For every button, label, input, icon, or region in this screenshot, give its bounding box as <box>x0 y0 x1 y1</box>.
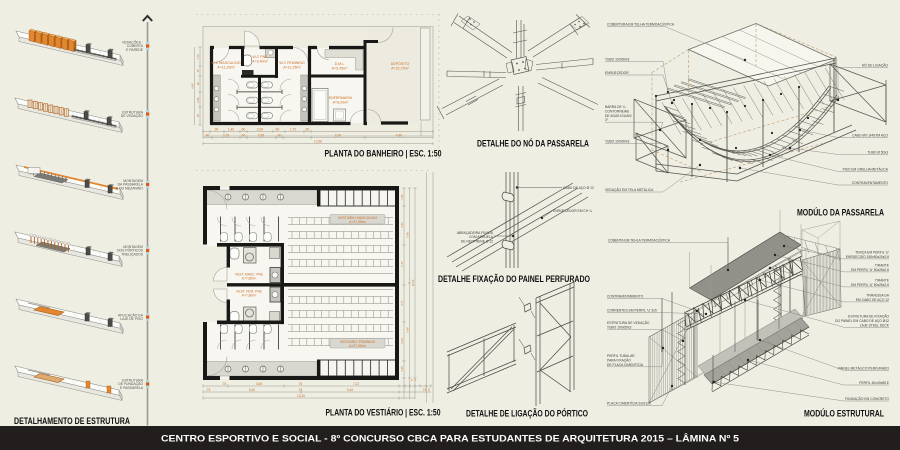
svg-text:PISO EM GRELHA METÁLICA: PISO EM GRELHA METÁLICA <box>843 168 889 172</box>
svg-text:.75: .75 <box>298 382 303 386</box>
svg-text:TUBO 100x50x3: TUBO 100x50x3 <box>605 58 630 62</box>
svg-text:NÓ DE LIGAÇÃO: NÓ DE LIGAÇÃO <box>862 63 888 68</box>
svg-text:BARRA DE ¼: BARRA DE ¼ <box>605 105 626 109</box>
svg-text:5,40: 5,40 <box>347 388 353 392</box>
svg-text:.60: .60 <box>205 133 210 137</box>
svg-text:.15: .15 <box>196 69 200 73</box>
svg-text:CORRENTES EM PERFIL 'U' 3x5: CORRENTES EM PERFIL 'U' 3x5 <box>607 309 657 313</box>
svg-text:A=5,45m²: A=5,45m² <box>332 67 348 71</box>
svg-text:PLACA CIMENTÍCIA 2x0x120: PLACA CIMENTÍCIA 2x0x120 <box>607 402 651 406</box>
svg-text:7,22: 7,22 <box>353 382 359 386</box>
svg-text:3,43: 3,43 <box>400 338 404 344</box>
svg-text:,15: ,15 <box>427 388 431 392</box>
svg-text:CONTORNEIAS: CONTORNEIAS <box>605 109 630 113</box>
svg-text:DE NEOPRENE Ø 12: DE NEOPRENE Ø 12 <box>461 239 493 243</box>
svg-text:DE VEDAÇÃO: DE VEDAÇÃO <box>121 113 144 118</box>
svg-text:TUBO 100x50x3: TUBO 100x50x3 <box>605 140 630 144</box>
svg-text:PLANTA DO BANHEIRO | ESC. 1:50: PLANTA DO BANHEIRO | ESC. 1:50 <box>325 149 442 159</box>
svg-text:A=97,95m²: A=97,95m² <box>349 344 367 348</box>
svg-text:2,85: 2,85 <box>196 97 200 103</box>
svg-text:PAINEL METÁLICO PERFURADO: PAINEL METÁLICO PERFURADO <box>838 367 889 371</box>
svg-text:2,77: 2,77 <box>400 261 404 267</box>
svg-text:1,45: 1,45 <box>400 194 404 200</box>
svg-text:DETALHE DE LIGAÇÃO DO PÓRTICO: DETALHE DE LIGAÇÃO DO PÓRTICO <box>466 408 588 419</box>
svg-text:DETALHE FIXAÇÃO DO PAINEL PERF: DETALHE FIXAÇÃO DO PAINEL PERFURADO <box>438 274 590 284</box>
svg-text:.75: .75 <box>222 382 227 386</box>
svg-text:A=7,80m²: A=7,80m² <box>242 294 257 298</box>
svg-text:A=22,75m²: A=22,75m² <box>391 67 409 71</box>
svg-text:2,77: 2,77 <box>400 300 404 306</box>
svg-text:CONTRAVENTAMENTO: CONTRAVENTAMENTO <box>852 181 889 185</box>
svg-text:4,45: 4,45 <box>191 83 195 89</box>
svg-text:3,30: 3,30 <box>335 133 342 137</box>
svg-text:5,48: 5,48 <box>406 232 410 238</box>
svg-text:ESTRUTURA DE VEDAÇÃO: ESTRUTURA DE VEDAÇÃO <box>607 320 650 325</box>
svg-text:W.C PNE: W.C PNE <box>252 55 268 59</box>
svg-text:PARA FIXAÇÃO: PARA FIXAÇÃO <box>607 357 631 362</box>
svg-text:1,45: 1,45 <box>400 366 404 372</box>
svg-text:EM CABO DE AÇO 12: EM CABO DE AÇO 12 <box>856 298 889 302</box>
svg-text:MODÚLO ESTRUTURAL: MODÚLO ESTRUTURAL <box>804 408 884 419</box>
svg-text:FUNDAÇÃO EM CONCRETO: FUNDAÇÃO EM CONCRETO <box>845 396 890 401</box>
svg-text:2,00: 2,00 <box>257 127 264 131</box>
svg-text:A=3,40m²: A=3,40m² <box>252 60 268 64</box>
svg-text:3,43: 3,43 <box>400 222 404 228</box>
svg-text:.90: .90 <box>275 127 280 131</box>
svg-text:LAJE DE PISO: LAJE DE PISO <box>120 317 143 321</box>
svg-text:.60: .60 <box>241 127 246 131</box>
svg-text:3,65: 3,65 <box>256 382 262 386</box>
svg-text:1,40: 1,40 <box>228 127 235 131</box>
svg-text:13,26: 13,26 <box>297 394 305 398</box>
svg-text:COBERTA EM TEHLA TERMOACÚSTICA: COBERTA EM TEHLA TERMOACÚSTICA <box>608 239 671 243</box>
svg-text:VEDAÇÃO EM TELA METÁLICA: VEDAÇÃO EM TELA METÁLICA <box>605 187 654 192</box>
svg-text:11,06: 11,06 <box>411 279 415 286</box>
svg-text:DO PAINEL EM CABO DE AÇO Ø12: DO PAINEL EM CABO DE AÇO Ø12 <box>835 319 889 323</box>
svg-text:W.C MASCULINO: W.C MASCULINO <box>211 61 240 65</box>
svg-text:CABO Ø½ 3/4STM AÇO: CABO Ø½ 3/4STM AÇO <box>852 134 888 138</box>
svg-text:.60: .60 <box>241 133 246 137</box>
svg-text:13,50: 13,50 <box>314 139 322 143</box>
svg-text:DETALHAMENTO DE ESTRUTURA: DETALHAMENTO DE ESTRUTURA <box>14 416 130 426</box>
svg-text:EM PERFIL 'U' 50x25x2.6: EM PERFIL 'U' 50x25x2.6 <box>851 283 889 287</box>
svg-text:5,48: 5,48 <box>406 327 410 333</box>
svg-text:PERFIL TUBULAR: PERFIL TUBULAR <box>607 354 635 358</box>
svg-text:CENTRO ESPORTIVO E SOCIAL - 8º: CENTRO ESPORTIVO E SOCIAL - 8º CONCURSO … <box>161 433 740 445</box>
svg-text:1,70: 1,70 <box>290 127 297 131</box>
svg-text:TRAVESSA DA: TRAVESSA DA <box>866 294 889 298</box>
svg-text:A=11,25m²: A=11,25m² <box>217 66 235 70</box>
svg-text:EM PERFIL 'U' 50x25x2.6: EM PERFIL 'U' 50x25x2.6 <box>851 268 889 272</box>
svg-text:1,70: 1,70 <box>196 54 200 60</box>
svg-text:.80: .80 <box>196 82 200 86</box>
svg-text:DE AGAS IGUAIS: DE AGAS IGUAIS <box>605 114 632 118</box>
svg-text:E DO MEZANINO: E DO MEZANINO <box>116 187 143 191</box>
svg-text:.90: .90 <box>214 127 219 131</box>
svg-text:2,05: 2,05 <box>223 133 230 137</box>
svg-text:.60: .60 <box>277 133 282 137</box>
svg-text:DETALHE DO NÓ DA PASSARELA: DETALHE DO NÓ DA PASSARELA <box>477 138 589 149</box>
svg-text:4,90: 4,90 <box>396 133 403 137</box>
svg-text:CABO DE AÇO Ø 12: CABO DE AÇO Ø 12 <box>563 186 594 190</box>
svg-text:DE PLACA CIMENTÍCIA: DE PLACA CIMENTÍCIA <box>607 363 644 367</box>
svg-text:A=11,25m²: A=11,25m² <box>283 66 301 70</box>
svg-text:2,95: 2,95 <box>258 133 265 137</box>
svg-text:CONTRAVENTAMENTO: CONTRAVENTAMENTO <box>607 295 644 299</box>
svg-text:TUBO Ø 50x3: TUBO Ø 50x3 <box>867 151 888 155</box>
svg-text:DEPÓSITO: DEPÓSITO <box>391 61 410 66</box>
svg-text:.60: .60 <box>305 127 310 131</box>
svg-text:TIRANTE: TIRANTE <box>875 264 890 268</box>
svg-text:W.C FEMININO: W.C FEMININO <box>279 61 305 65</box>
svg-text:E PASSARELA: E PASSARELA <box>120 386 144 390</box>
svg-text:TERÇA EM PERFIL 'U': TERÇA EM PERFIL 'U' <box>855 251 889 255</box>
svg-text:MODÚLO DA PASSARELA: MODÚLO DA PASSARELA <box>797 207 884 218</box>
svg-text:LAJE STEEL DECK: LAJE STEEL DECK <box>860 323 890 327</box>
svg-text:E PAREDE: E PAREDE <box>126 48 144 52</box>
svg-text:.2 .2: .2 .2 <box>410 378 416 382</box>
svg-text:A=8,20m²: A=8,20m² <box>333 101 349 105</box>
svg-text:.75: .75 <box>298 388 303 392</box>
svg-text:A=97,95m²: A=97,95m² <box>349 220 367 224</box>
svg-text:ESTRUTURA DE FIXAÇÃO: ESTRUTURA DE FIXAÇÃO <box>848 314 889 319</box>
svg-text:ENRIJECEDOR EM CH ¼: ENRIJECEDOR EM CH ¼ <box>553 209 592 213</box>
svg-text:ENRIJECEDOR: ENRIJECEDOR <box>605 71 629 75</box>
svg-text:D.M.L: D.M.L <box>335 62 345 66</box>
svg-text:PLANTA DO VESTIÁRIO | ESC. 1:5: PLANTA DO VESTIÁRIO | ESC. 1:50 <box>326 408 441 418</box>
svg-text:A=7,80m²: A=7,80m² <box>242 277 257 281</box>
svg-text:.75: .75 <box>206 388 211 392</box>
svg-text:.25: .25 <box>196 114 200 118</box>
svg-text:TRELIÇADOS: TRELIÇADOS <box>121 253 143 257</box>
svg-text:PERFIL 40x40x85.E: PERFIL 40x40x85.E <box>859 381 890 385</box>
svg-text:ENRIJECIDO 150x50x20x2.6: ENRIJECIDO 150x50x20x2.6 <box>846 255 889 259</box>
svg-text:TIRANTE: TIRANTE <box>875 279 890 283</box>
svg-text:5,40: 5,40 <box>249 388 255 392</box>
svg-text:COBERTURA EM TELHA TERMOACÚSTI: COBERTURA EM TELHA TERMOACÚSTICA <box>607 23 675 27</box>
svg-text:TUBO 100x50x3: TUBO 100x50x3 <box>607 325 632 329</box>
svg-text:ENFERMARIA: ENFERMARIA <box>329 96 353 100</box>
svg-text:.75: .75 <box>422 388 427 392</box>
